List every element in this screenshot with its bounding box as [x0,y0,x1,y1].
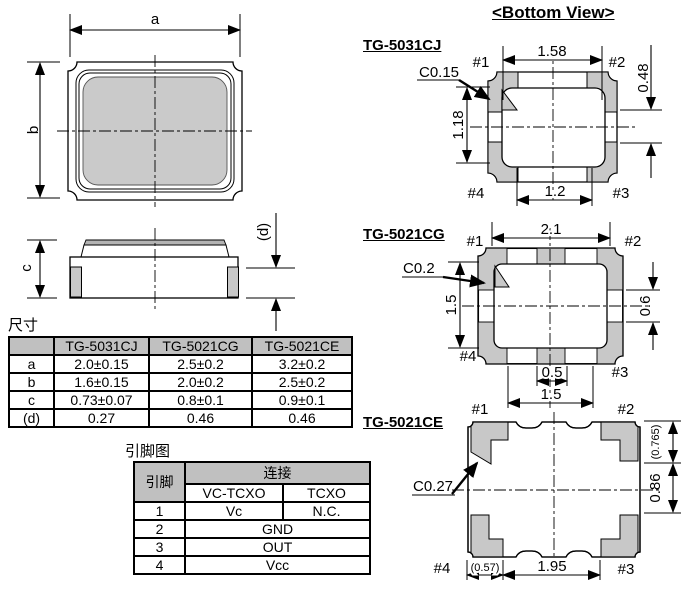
pin-2-conn: GND [185,520,370,538]
bottom-view-title: <Bottom View> [492,3,615,23]
ce-chamfer-label: C0.27 [413,478,453,495]
dim-b-cg: 2.0±0.2 [149,373,252,391]
cg-chamfer-label: C0.2 [403,260,435,277]
cg-dim-right: 0.6 [637,296,654,317]
cj-pin1-label: #1 [473,54,490,71]
datasheet-page: a b c (d) [0,0,686,590]
table-row: c 0.73±0.07 0.8±0.1 0.9±0.1 [9,391,352,409]
pin-table-title: 引脚图 [125,440,170,461]
dim-col-cg: TG-5021CG [149,337,252,355]
pin-table: 引脚 连接 VC-TCXO TCXO 1 Vc N.C. 2 GND 3 OUT… [133,461,371,575]
table-row: 3 OUT [134,538,370,556]
table-row: (d) 0.27 0.46 0.46 [9,409,352,427]
dim-a-cg: 2.5±0.2 [149,355,252,373]
ce-dim-right-top: (0.765) [650,425,662,460]
top-view-drawing: a b [25,11,252,207]
dim-row-a-key: a [9,355,54,373]
dim-a-label: a [151,11,160,28]
cg-dim-bottom: 1.5 [541,386,562,403]
cj-chamfer-label: C0.15 [419,64,459,81]
table-row: b 1.6±0.15 2.0±0.2 2.5±0.2 [9,373,352,391]
subcol-tcxo: TCXO [283,484,370,502]
cg-dim-left: 1.5 [443,295,460,316]
dim-a-cj: 2.0±0.15 [54,355,149,373]
cg-pin2-label: #2 [625,233,642,250]
pin-3: 3 [134,538,185,556]
table-row: 引脚 连接 [134,462,370,484]
dim-c-label: c [18,264,35,272]
pin-2: 2 [134,520,185,538]
dim-col-ce: TG-5021CE [252,337,352,355]
dim-row-b-key: b [9,373,54,391]
pin-col-header: 引脚 [134,462,185,502]
side-view-drawing: c (d) [18,213,295,331]
cj-dim-top: 1.58 [537,43,566,60]
dim-b-ce: 2.5±0.2 [252,373,352,391]
ce-dim-bottom-left: (0.57) [471,562,500,574]
bottom-view-ce: (0.765) 0.86 (0.57) 1.95 C0.27 #1 #2 #3 … [412,401,681,580]
ce-pin1-label: #1 [472,401,489,418]
table-row: a 2.0±0.15 2.5±0.2 3.2±0.2 [9,355,352,373]
ce-name-label: TG-5021CE [363,414,443,431]
cg-dim-top: 2.1 [541,221,562,238]
dim-col-blank [9,337,54,355]
cj-name-label: TG-5031CJ [363,37,441,54]
cg-pin4-label: #4 [460,348,477,365]
dim-d-cg: 0.46 [149,409,252,427]
side-pad-right [228,267,239,297]
pin-1-tcxo: N.C. [283,502,370,520]
ce-pin4-label: #4 [434,560,451,577]
dim-c-cj: 0.73±0.07 [54,391,149,409]
cg-pin3-label: #3 [612,364,629,381]
pin-1-vctcxo: Vc [185,502,283,520]
cj-pin3-label: #3 [613,185,630,202]
cg-name-label: TG-5021CG [363,226,445,243]
ce-dim-bottom: 1.95 [537,558,566,575]
side-pad-left [71,267,82,297]
ce-dim-right-bottom: 0.86 [647,473,664,502]
pin-1: 1 [134,502,185,520]
dim-table-title: 尺寸 [8,314,38,335]
dim-c-ce: 0.9±0.1 [252,391,352,409]
cj-dim-left: 1.18 [450,110,467,139]
dim-d-ce: 0.46 [252,409,352,427]
dim-col-cj: TG-5031CJ [54,337,149,355]
ce-pin2-label: #2 [618,401,635,418]
dim-c-cg: 0.8±0.1 [149,391,252,409]
dim-b-label: b [25,126,42,134]
table-row: TG-5031CJ TG-5021CG TG-5021CE [9,337,352,355]
conn-col-header: 连接 [185,462,370,484]
cg-dim-bottom-pad: 0.5 [542,364,563,381]
cj-dim-bottom: 1.2 [545,183,566,200]
table-row: 4 Vcc [134,556,370,574]
bottom-view-cg: 2.1 1.5 0.6 0.5 1.5 C0.2 #1 #2 #3 #4 [402,221,660,408]
dim-d-cj: 0.27 [54,409,149,427]
pin-4: 4 [134,556,185,574]
pin-3-conn: OUT [185,538,370,556]
cj-dim-right: 0.48 [635,63,652,92]
cj-pin4-label: #4 [468,185,485,202]
dim-d-label: (d) [255,223,272,241]
table-row: 2 GND [134,520,370,538]
cg-pin1-label: #1 [467,233,484,250]
bottom-view-cj: 1.58 1.18 0.48 1.2 C0.15 #1 #2 #3 #4 [417,43,662,206]
subcol-vctcxo: VC-TCXO [185,484,283,502]
dim-b-cj: 1.6±0.15 [54,373,149,391]
dim-a-ce: 3.2±0.2 [252,355,352,373]
dim-row-c-key: c [9,391,54,409]
dim-row-d-key: (d) [9,409,54,427]
dimensions-table: TG-5031CJ TG-5021CG TG-5021CE a 2.0±0.15… [8,336,353,428]
ce-pin3-label: #3 [618,561,635,578]
cj-pin2-label: #2 [609,54,626,71]
pin-4-conn: Vcc [185,556,370,574]
table-row: 1 Vc N.C. [134,502,370,520]
